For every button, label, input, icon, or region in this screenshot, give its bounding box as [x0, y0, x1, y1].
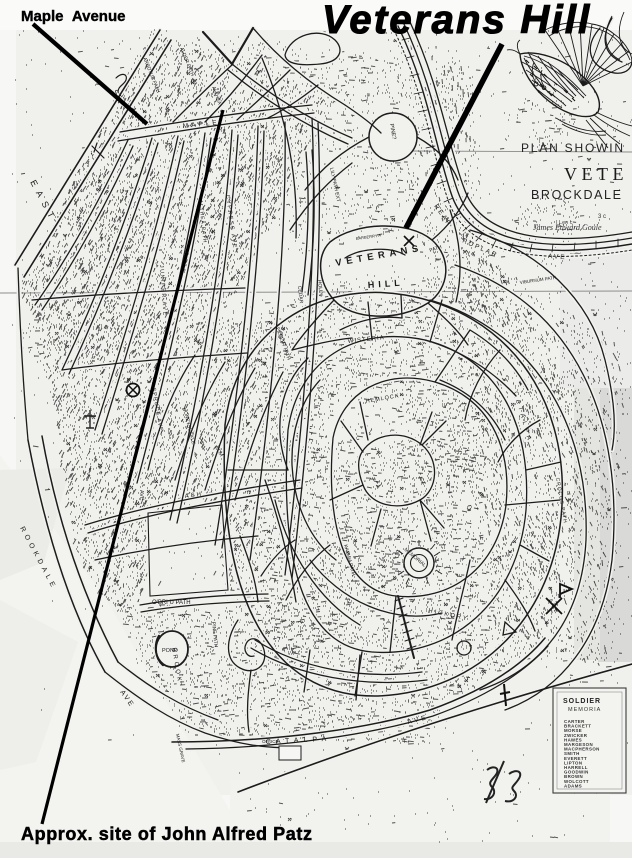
svg-text:MEMORIA: MEMORIA	[568, 707, 601, 713]
svg-text:SOLDIER: SOLDIER	[563, 698, 601, 705]
svg-text:O'BRI U PATH: O'BRI U PATH	[152, 600, 191, 606]
svg-text:OFFICE: OFFICE	[262, 739, 279, 744]
svg-text:VETE: VETE	[564, 164, 628, 184]
svg-text:Veterans Hill: Veterans Hill	[322, 0, 591, 42]
svg-text:3 c: 3 c	[598, 214, 606, 220]
svg-text:ADAMS: ADAMS	[564, 783, 582, 788]
svg-text:Approx. site of John Alfred Pa: Approx. site of John Alfred Patz	[21, 824, 313, 844]
svg-text:Maple Avenue: Maple Avenue	[21, 8, 125, 25]
svg-text:AVE: AVE	[548, 253, 567, 261]
svg-text:James Edward Goule: James Edward Goule	[533, 223, 602, 232]
svg-text:PLAN SHOWIN: PLAN SHOWIN	[521, 141, 625, 155]
svg-text:POND: POND	[162, 648, 178, 654]
svg-text:AVE: AVE	[138, 490, 144, 501]
svg-text:BROCKDALE: BROCKDALE	[531, 188, 623, 202]
